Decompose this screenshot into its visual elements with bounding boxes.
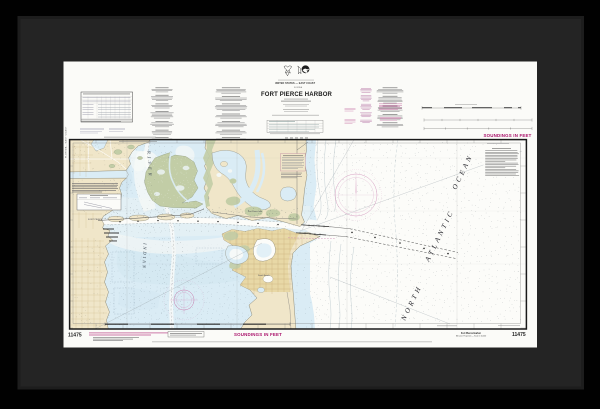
svg-text:FLORIDA – EAST COAST: FLORIDA – EAST COAST bbox=[65, 126, 68, 158]
svg-text:South Beach: South Beach bbox=[258, 274, 269, 277]
svg-text:INDIAN: INDIAN bbox=[142, 242, 148, 270]
svg-text:Mercator Projection — Scale 1:: Mercator Projection — Scale 1:10,000 bbox=[456, 335, 486, 338]
svg-text:FLORIDA: FLORIDA bbox=[294, 86, 303, 89]
svg-text:11475: 11475 bbox=[68, 333, 82, 339]
svg-text:SOUNDINGS IN FEET: SOUNDINGS IN FEET bbox=[234, 332, 282, 337]
svg-text:FORT PIERCE HARBOR: FORT PIERCE HARBOR bbox=[261, 92, 333, 98]
svg-text:11475: 11475 bbox=[512, 332, 526, 338]
svg-text:Fort Pierce Inlet: Fort Pierce Inlet bbox=[248, 210, 263, 213]
svg-text:Fort Pierce Harbor: Fort Pierce Harbor bbox=[461, 332, 481, 335]
svg-text:UNITED STATES — EAST COAST: UNITED STATES — EAST COAST bbox=[275, 82, 316, 85]
svg-text:FORT PIERCE: FORT PIERCE bbox=[88, 219, 103, 221]
svg-text:SOUNDINGS IN FEET: SOUNDINGS IN FEET bbox=[483, 133, 531, 138]
